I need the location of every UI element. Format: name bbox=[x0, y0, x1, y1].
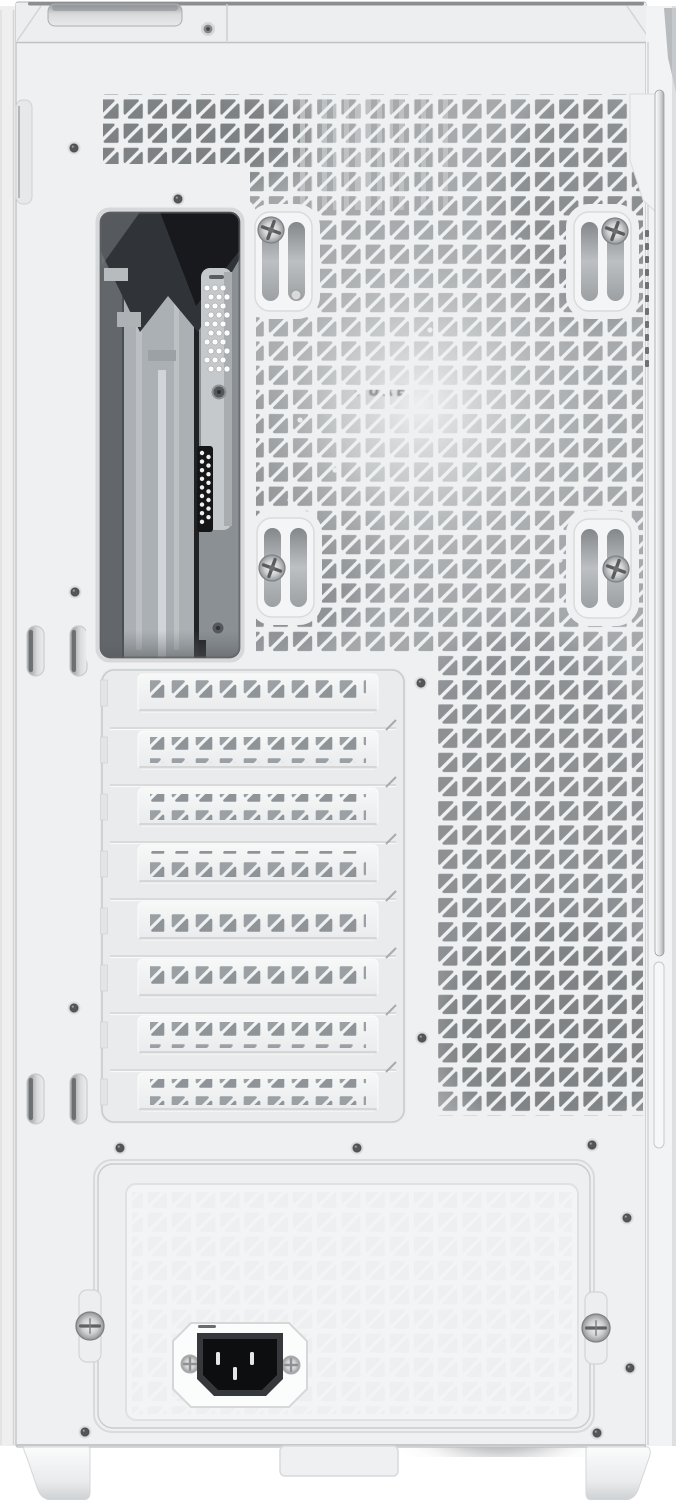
slot-cover-vents bbox=[150, 908, 366, 934]
slot-cover-vents bbox=[150, 1079, 366, 1105]
expansion-slot-cover bbox=[101, 959, 379, 997]
case-bottom bbox=[16, 1445, 650, 1500]
expansion-slot-cover bbox=[101, 731, 379, 769]
expansion-area bbox=[100, 668, 406, 1124]
case-foot-right bbox=[586, 1447, 650, 1500]
slot-cover-vents bbox=[150, 680, 366, 706]
screw-hole bbox=[416, 1032, 429, 1045]
expansion-slot-cover bbox=[101, 1016, 379, 1054]
side-panel-tab bbox=[27, 1074, 44, 1124]
screw-hole bbox=[415, 677, 428, 690]
screw-hole bbox=[172, 193, 185, 206]
fan-mount-slot bbox=[288, 222, 305, 301]
inlet-screw-left bbox=[181, 1355, 199, 1373]
slot-cover-vents bbox=[150, 965, 366, 991]
slot-cover-vents bbox=[150, 1022, 366, 1048]
screw-hole bbox=[114, 1142, 127, 1155]
expansion-slot-cover bbox=[101, 1073, 379, 1111]
side-panel-tab bbox=[27, 626, 44, 676]
expansion-slot-cover bbox=[101, 902, 379, 940]
side-panel-tab bbox=[70, 1074, 87, 1124]
fan-mount-slot bbox=[581, 529, 598, 608]
handle-inner-shadow bbox=[52, 5, 178, 11]
screw-hole bbox=[351, 1142, 364, 1155]
product-photo-rear-pc-case: PURE bbox=[0, 0, 676, 1500]
inlet-plate-mark bbox=[198, 1325, 216, 1328]
screw-hole bbox=[69, 586, 82, 599]
c14-pin-left bbox=[216, 1352, 220, 1365]
slot-cover-vents bbox=[150, 737, 366, 763]
c14-pin-right bbox=[250, 1352, 254, 1365]
screw-hole bbox=[79, 1426, 92, 1439]
screw-hole bbox=[621, 1212, 634, 1225]
expansion-slot-cover bbox=[101, 674, 379, 712]
screw-hole bbox=[68, 1002, 81, 1015]
bottom-center-tab bbox=[280, 1446, 398, 1476]
screw-hole bbox=[586, 1139, 599, 1152]
slot-cover-vents bbox=[150, 851, 366, 877]
screw-hole bbox=[624, 1362, 637, 1375]
side-panel-tab bbox=[70, 626, 87, 676]
slot-cover-vents bbox=[150, 794, 366, 820]
glass-edge-notch bbox=[654, 962, 664, 1148]
fan-mount-slot bbox=[290, 528, 307, 607]
motherboard-io-cutout bbox=[86, 198, 256, 672]
io-screw-upper bbox=[213, 386, 226, 399]
psu-thumbscrew bbox=[76, 1312, 104, 1340]
io-cutout-interior bbox=[100, 212, 240, 658]
psu-bay bbox=[76, 1160, 610, 1432]
glass-edge-bar bbox=[655, 90, 664, 956]
power-inlet bbox=[173, 1323, 307, 1407]
psu-thumbscrew bbox=[582, 1314, 610, 1342]
c14-pin-ground bbox=[233, 1367, 237, 1380]
pc-case-rear-view: PURE bbox=[0, 0, 676, 1500]
top-panel-screw bbox=[201, 22, 215, 36]
screw-hole bbox=[68, 142, 81, 155]
expansion-slot-cover bbox=[101, 845, 379, 883]
top-panel bbox=[16, 2, 651, 43]
case-foot-left bbox=[24, 1447, 90, 1500]
io-lower-dotted-connector bbox=[197, 446, 213, 532]
inlet-screw-right bbox=[282, 1356, 300, 1374]
screw-hole bbox=[591, 1427, 604, 1440]
expansion-slot-cover bbox=[101, 788, 379, 826]
fan-mount-slot bbox=[581, 222, 598, 301]
c14-inlet-socket bbox=[203, 1339, 277, 1390]
side-panel-edge-left bbox=[0, 6, 16, 1446]
